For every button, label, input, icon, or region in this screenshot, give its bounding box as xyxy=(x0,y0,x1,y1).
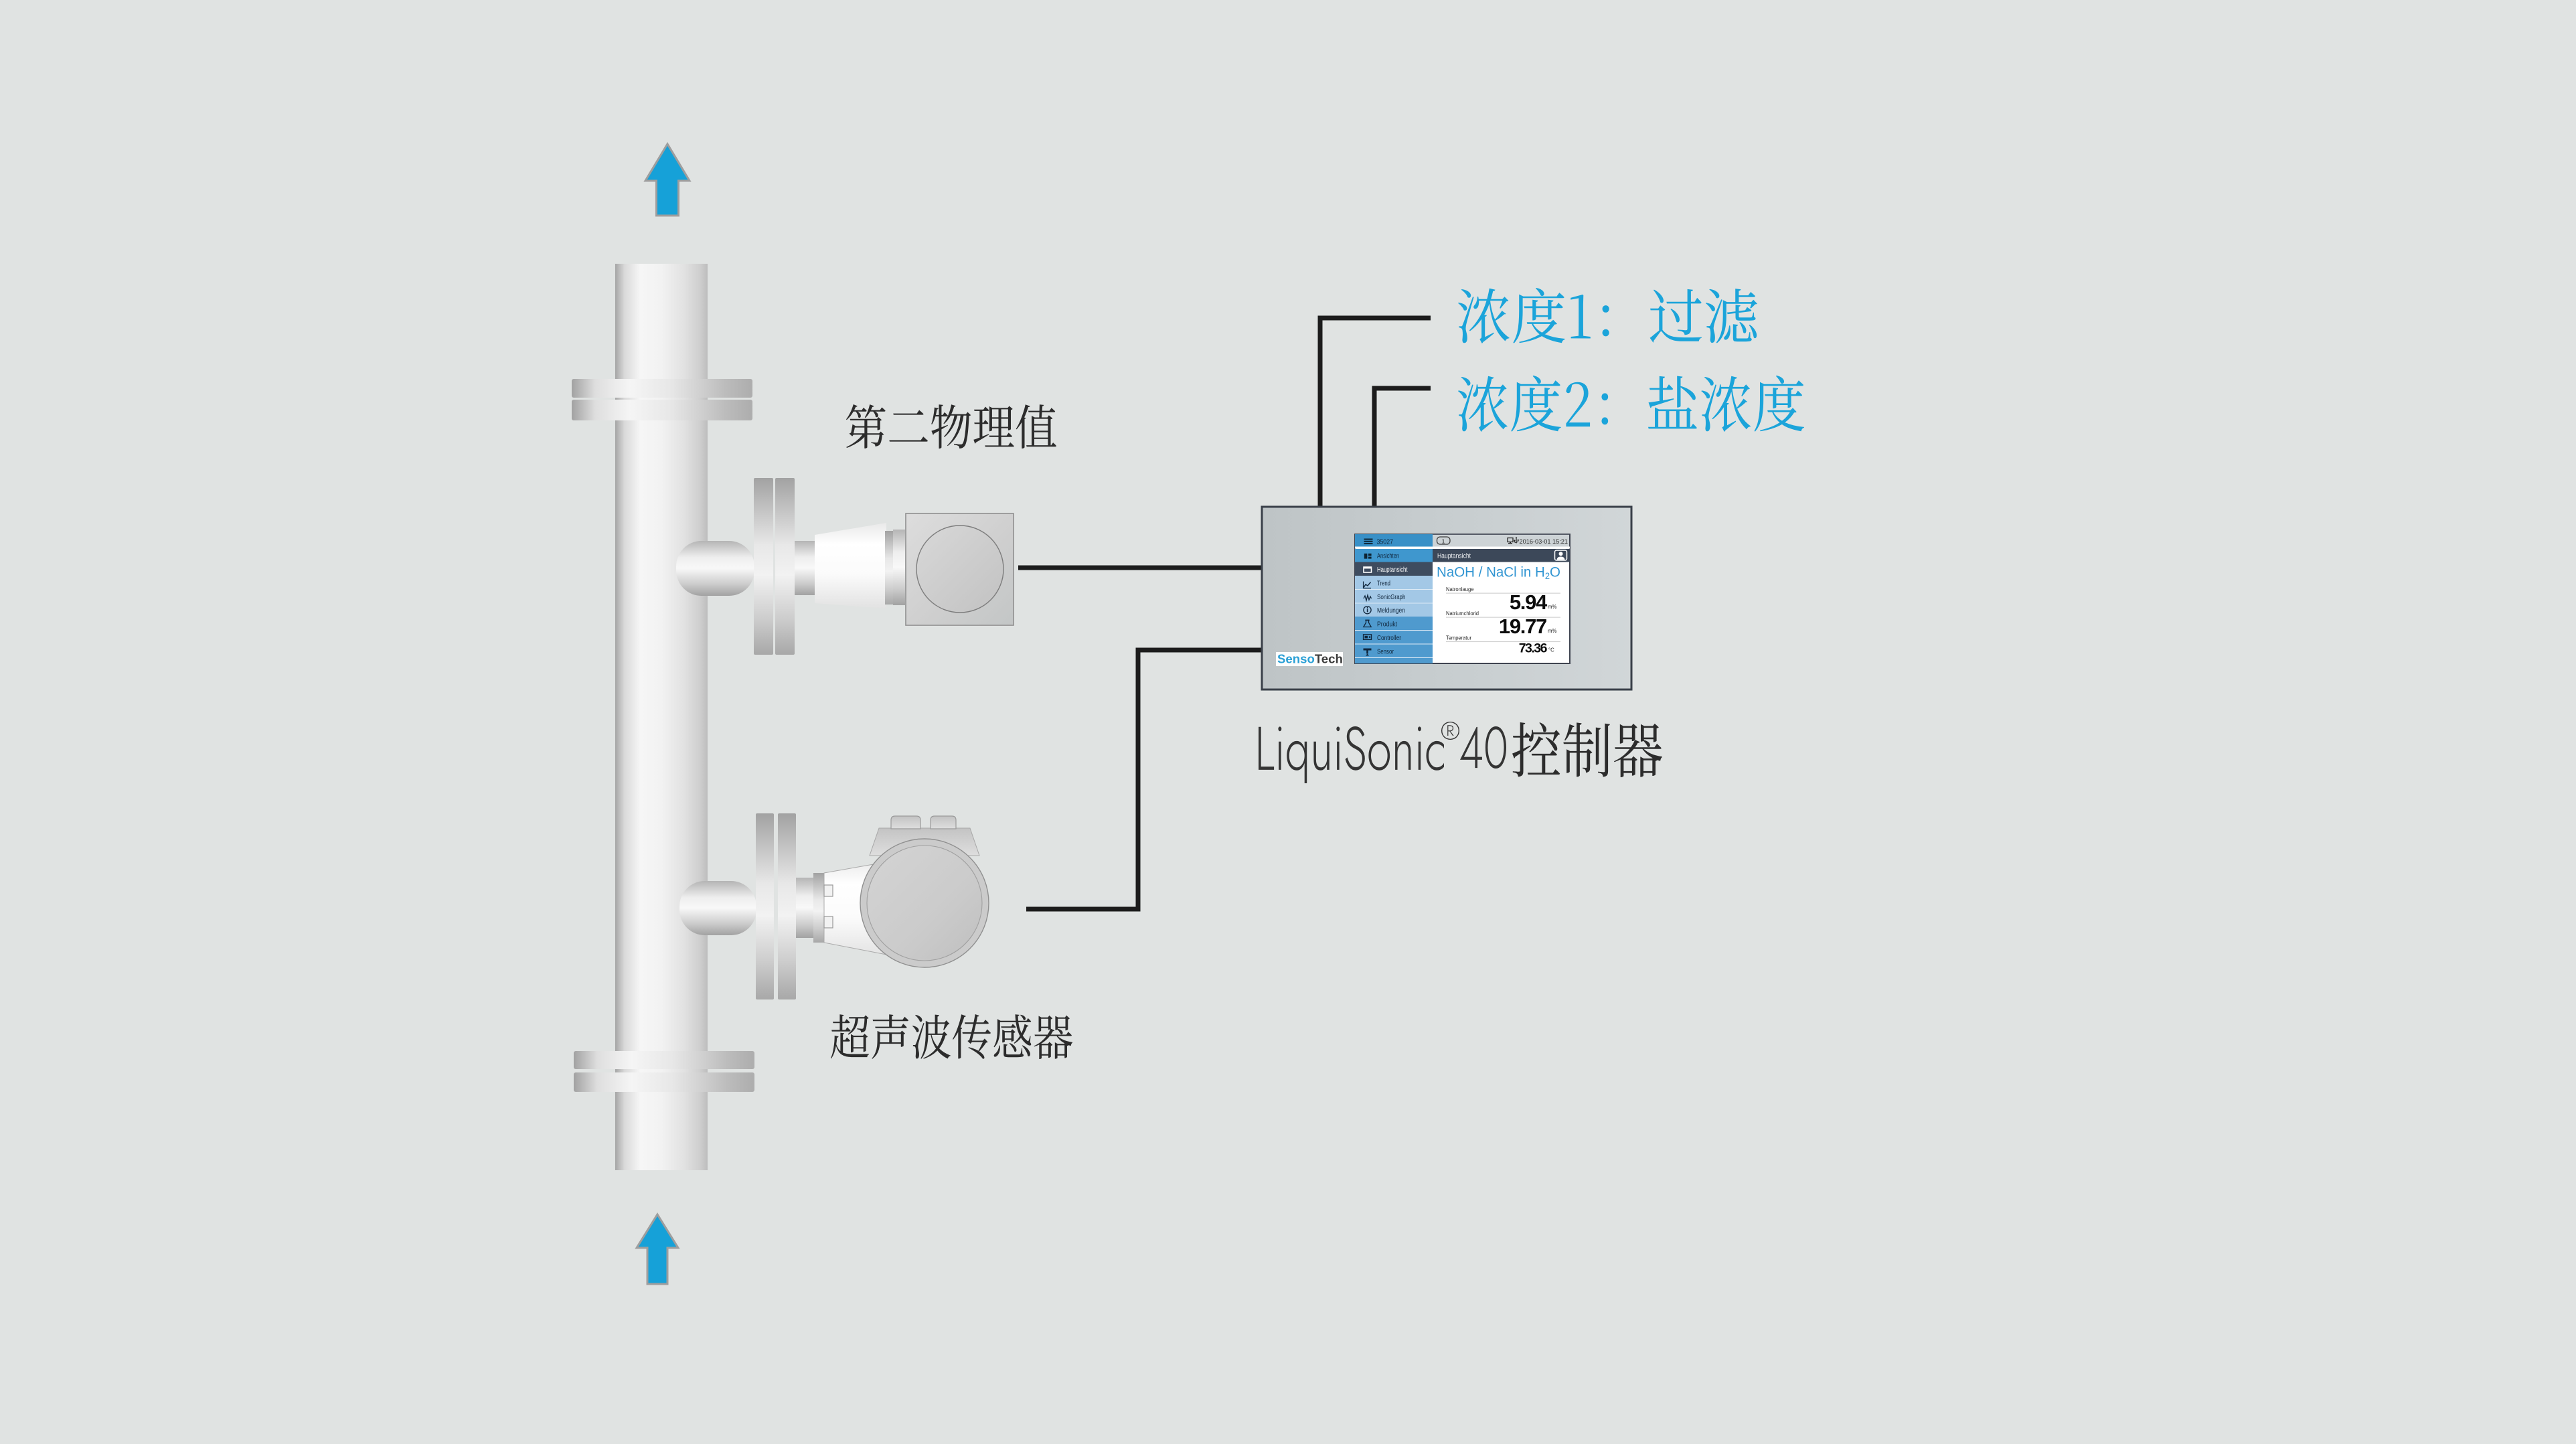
svg-text:73.36: 73.36 xyxy=(1519,641,1548,656)
svg-text:Ansichten: Ansichten xyxy=(1377,553,1399,560)
svg-text:m%: m% xyxy=(1548,604,1556,610)
svg-text:SensoTech: SensoTech xyxy=(1277,652,1343,666)
svg-text:Trend: Trend xyxy=(1377,580,1390,587)
svg-text:m%: m% xyxy=(1548,628,1556,634)
svg-text:Hauptansicht: Hauptansicht xyxy=(1377,566,1408,574)
svg-text:NaOH / NaCl in H2O: NaOH / NaCl in H2O xyxy=(1437,564,1560,582)
svg-text:2016-03-01 15:21: 2016-03-01 15:21 xyxy=(1520,538,1568,545)
svg-text:35027: 35027 xyxy=(1377,539,1394,546)
svg-text:Natriumchlorid: Natriumchlorid xyxy=(1446,610,1479,617)
svg-text:Natronlauge: Natronlauge xyxy=(1446,586,1474,592)
svg-text:19.77: 19.77 xyxy=(1499,615,1546,638)
svg-text:1: 1 xyxy=(1442,538,1445,544)
svg-text:Meldungen: Meldungen xyxy=(1377,607,1405,615)
svg-text:Produkt: Produkt xyxy=(1377,621,1397,628)
svg-text:Sensor: Sensor xyxy=(1377,648,1394,655)
svg-text:Hauptansicht: Hauptansicht xyxy=(1437,552,1471,560)
svg-text:SonicGraph: SonicGraph xyxy=(1377,594,1406,601)
svg-text:Controller: Controller xyxy=(1377,635,1402,642)
svg-text:5.94: 5.94 xyxy=(1510,590,1548,614)
svg-text:°C: °C xyxy=(1548,647,1554,653)
svg-text:Temperatur: Temperatur xyxy=(1446,635,1471,641)
